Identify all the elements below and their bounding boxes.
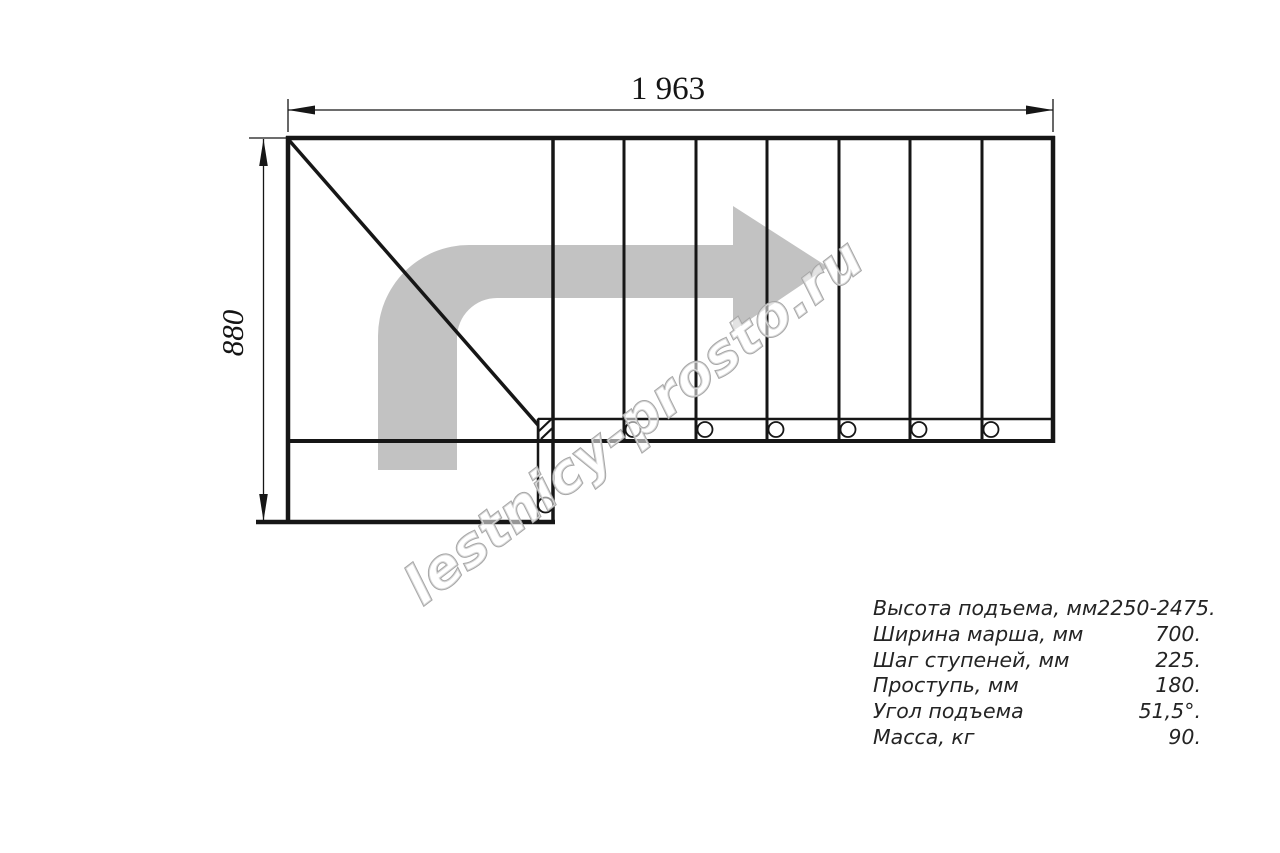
spec-value: 180. bbox=[1155, 673, 1201, 699]
spec-label: Проступь, мм bbox=[873, 673, 1019, 699]
spec-row: Угол подъема 51,5°. bbox=[873, 699, 1201, 725]
baluster-circle bbox=[769, 422, 784, 437]
spec-label: Высота подъема, мм bbox=[873, 596, 1097, 622]
dimension-arrow-icon bbox=[1026, 106, 1053, 115]
spec-value: 51,5°. bbox=[1139, 699, 1201, 725]
dimension-arrow-icon bbox=[288, 106, 315, 115]
spec-table: Высота подъема, мм 2250-2475. Ширина мар… bbox=[873, 596, 1201, 751]
spec-row: Высота подъема, мм 2250-2475. bbox=[873, 596, 1201, 622]
spec-value: 225. bbox=[1155, 648, 1201, 674]
spec-row: Шаг ступеней, мм 225. bbox=[873, 648, 1201, 674]
spec-row: Ширина марша, мм 700. bbox=[873, 622, 1201, 648]
spec-label: Ширина марша, мм bbox=[873, 622, 1083, 648]
spec-label: Масса, кг bbox=[873, 725, 975, 751]
dimension-arrow-icon bbox=[259, 139, 268, 166]
baluster-circle bbox=[984, 422, 999, 437]
spec-value: 90. bbox=[1168, 725, 1201, 751]
height-dimension-label: 880 bbox=[215, 309, 250, 356]
spec-label: Угол подъема bbox=[873, 699, 1024, 725]
spec-row: Масса, кг 90. bbox=[873, 725, 1201, 751]
baluster-circle bbox=[841, 422, 856, 437]
spec-value: 700. bbox=[1155, 622, 1201, 648]
spec-row: Проступь, мм 180. bbox=[873, 673, 1201, 699]
spec-value: 2250-2475. bbox=[1097, 596, 1215, 622]
width-dimension-label: 1 963 bbox=[631, 71, 705, 107]
dimension-arrow-icon bbox=[259, 494, 268, 521]
spec-label: Шаг ступеней, мм bbox=[873, 648, 1069, 674]
baluster-circle bbox=[698, 422, 713, 437]
baluster-circle bbox=[912, 422, 927, 437]
